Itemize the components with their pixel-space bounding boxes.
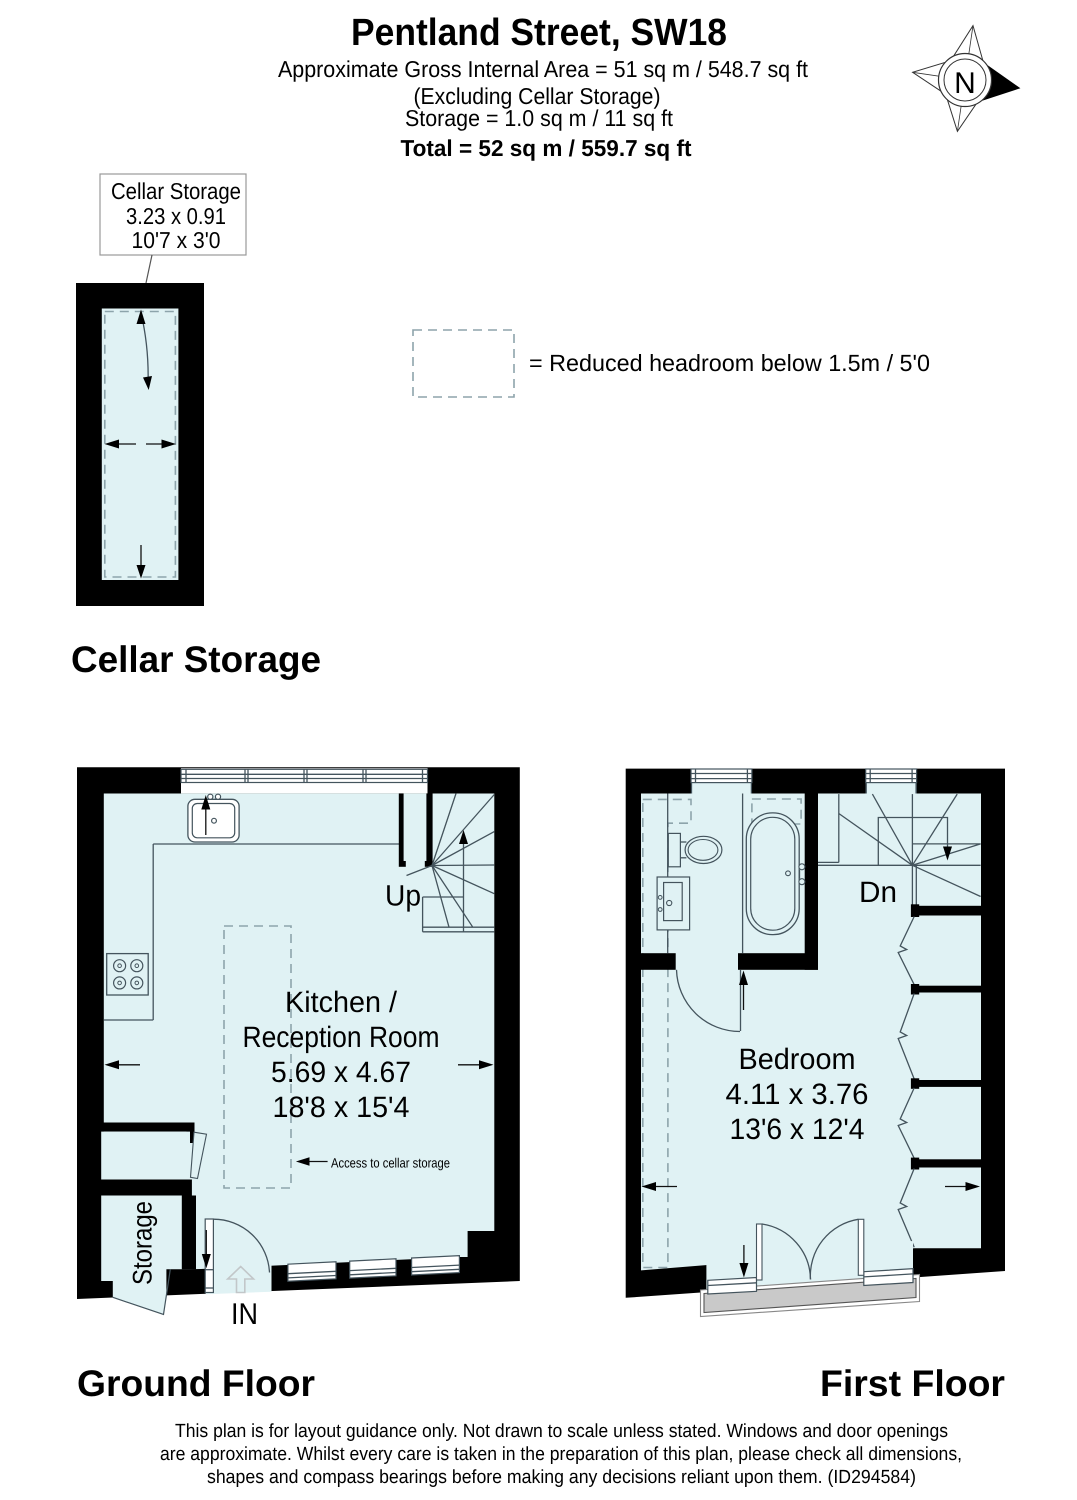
svg-text:are approximate. Whilst every: are approximate. Whilst every care is ta… <box>160 1444 962 1465</box>
svg-text:10'7 x 3'0: 10'7 x 3'0 <box>132 227 221 253</box>
svg-text:18'8 x 15'4: 18'8 x 15'4 <box>273 1091 410 1124</box>
svg-text:N: N <box>954 67 976 100</box>
svg-text:Kitchen /: Kitchen / <box>285 986 398 1019</box>
svg-text:Cellar Storage: Cellar Storage <box>71 639 321 680</box>
svg-text:Reception Room: Reception Room <box>243 1021 440 1054</box>
svg-text:Dn: Dn <box>859 876 897 909</box>
svg-text:shapes and compass bearings be: shapes and compass bearings before makin… <box>207 1467 916 1488</box>
svg-text:3.23 x 0.91: 3.23 x 0.91 <box>126 203 226 229</box>
svg-text:This plan is for layout guidan: This plan is for layout guidance only. N… <box>175 1421 948 1442</box>
svg-text:Storage: Storage <box>128 1201 158 1285</box>
svg-text:IN: IN <box>231 1298 258 1331</box>
svg-text:Access to cellar storage: Access to cellar storage <box>331 1156 450 1171</box>
svg-text:5.69 x 4.67: 5.69 x 4.67 <box>271 1056 411 1089</box>
svg-text:Up: Up <box>385 880 421 913</box>
svg-text:Approximate Gross Internal Are: Approximate Gross Internal Area = 51 sq … <box>278 56 809 82</box>
svg-text:Bedroom: Bedroom <box>739 1043 856 1076</box>
svg-text:Cellar Storage: Cellar Storage <box>111 178 241 204</box>
svg-text:= Reduced headroom below 1.5m: = Reduced headroom below 1.5m / 5'0 <box>529 350 930 376</box>
svg-text:Pentland Street, SW18: Pentland Street, SW18 <box>351 12 727 54</box>
svg-text:13'6 x 12'4: 13'6 x 12'4 <box>730 1113 865 1146</box>
svg-text:Ground Floor: Ground Floor <box>77 1363 315 1404</box>
svg-text:Total = 52 sq m / 559.7 sq ft: Total = 52 sq m / 559.7 sq ft <box>401 135 692 161</box>
svg-text:4.11 x 3.76: 4.11 x 3.76 <box>726 1078 869 1111</box>
svg-text:First Floor: First Floor <box>820 1363 1005 1404</box>
svg-text:Storage = 1.0 sq m / 11 sq ft: Storage = 1.0 sq m / 11 sq ft <box>405 105 674 131</box>
